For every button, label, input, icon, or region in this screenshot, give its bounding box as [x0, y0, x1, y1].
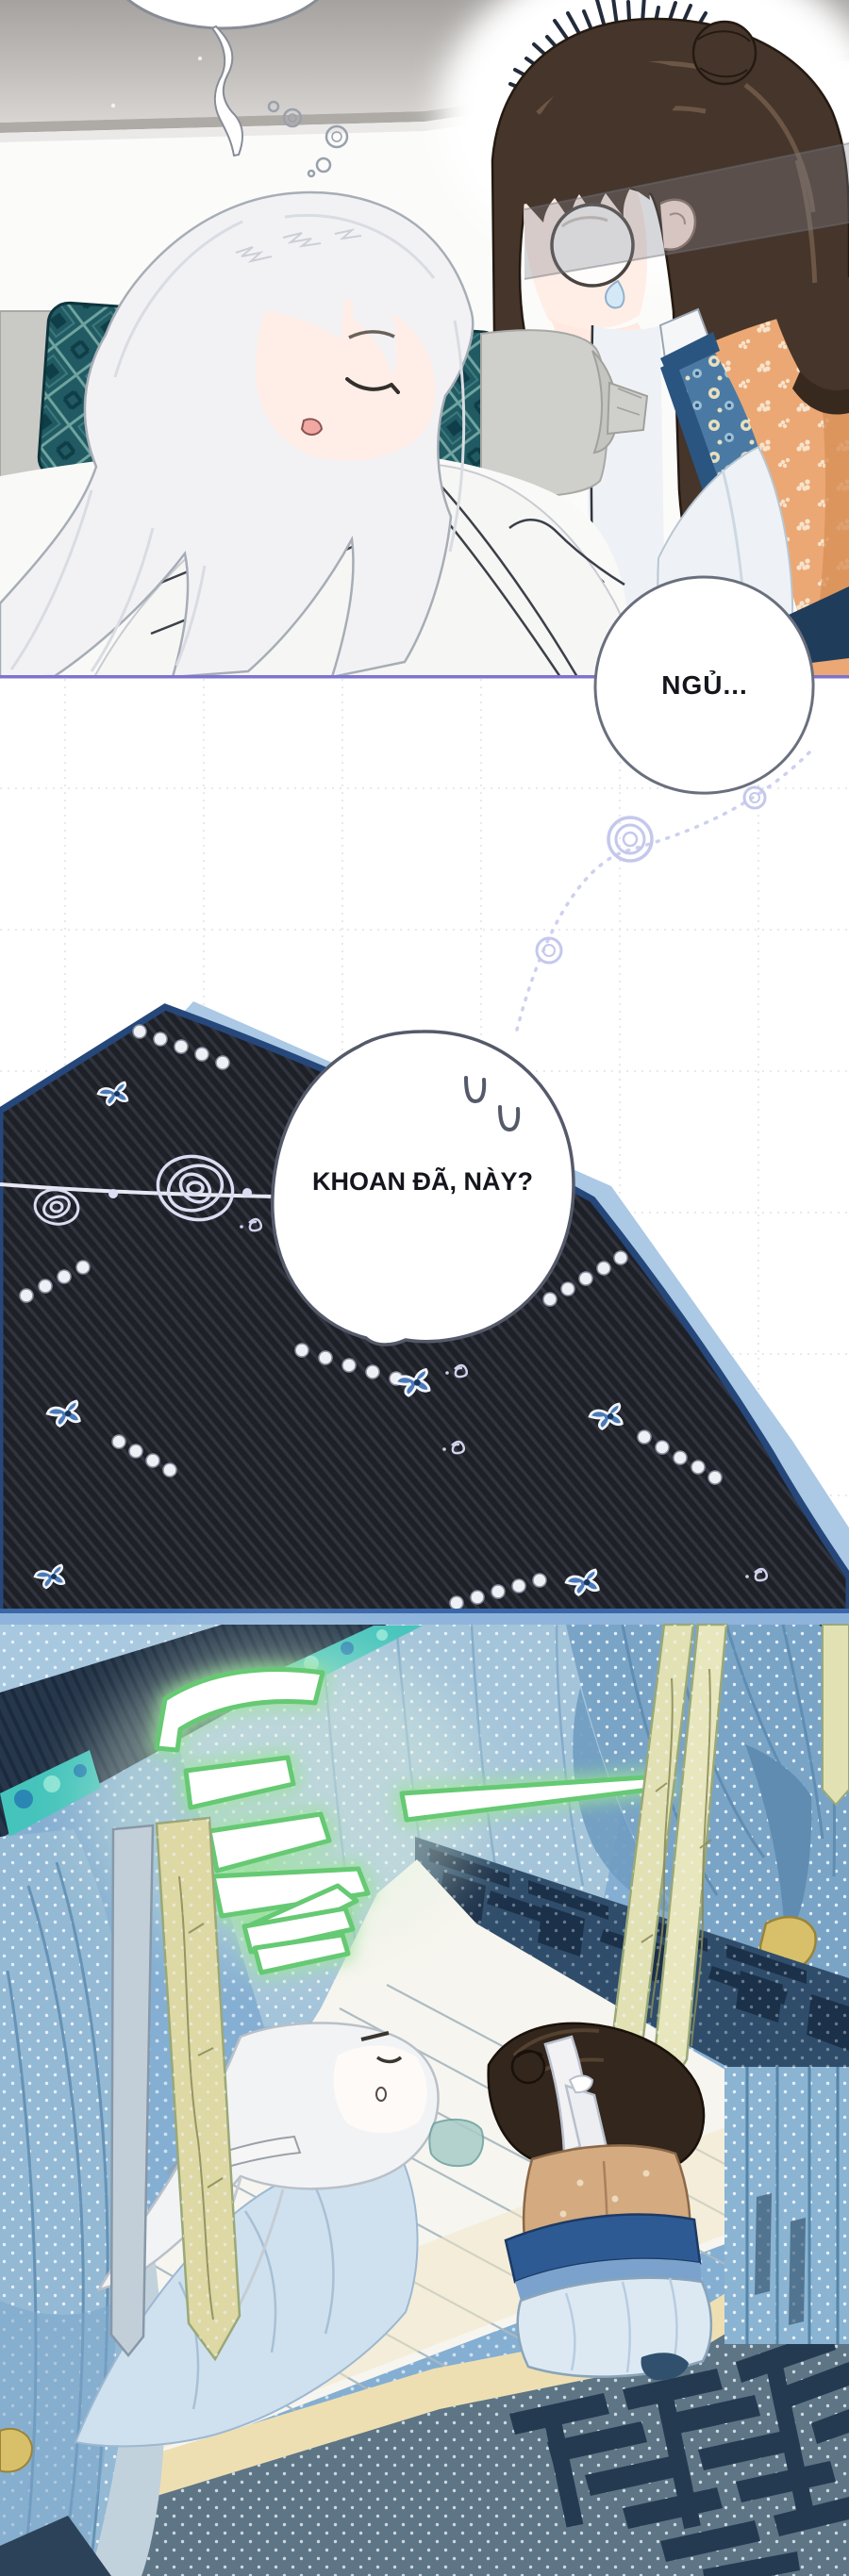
svg-text:NGỦ...: NGỦ... [661, 669, 748, 700]
svg-text:KHOAN ĐÃ, NÀY?: KHOAN ĐÃ, NÀY? [312, 1166, 533, 1196]
